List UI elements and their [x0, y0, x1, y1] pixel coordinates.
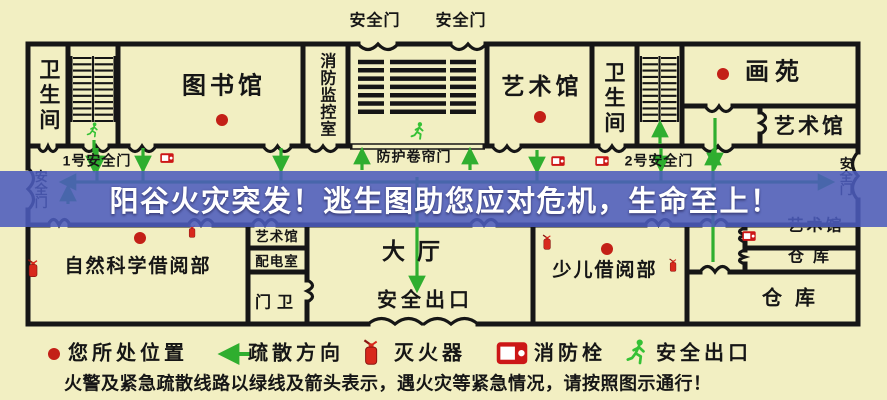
- fire-hydrant-icon: [160, 153, 173, 163]
- location-dot-icon: [717, 68, 729, 80]
- room-label-warehouse-small: 仓库: [788, 250, 838, 267]
- room-label-restroom-left: 卫生间: [37, 59, 59, 134]
- room-label-children-reading: 少儿借阅部: [552, 261, 657, 281]
- room-label-warehouse-large: 仓库: [762, 289, 828, 310]
- room-label-main-hall: 大厅: [382, 240, 452, 264]
- door-label-exit-no2: 2号安全门: [625, 154, 694, 169]
- running-person-icon: [628, 339, 644, 363]
- room-label-power-room: 配电室: [255, 255, 299, 269]
- room-label-top-exit-door-2: 安全门: [435, 14, 486, 31]
- fire-extinguisher-icon: [543, 235, 550, 249]
- room-label-library: 图书馆: [182, 75, 266, 100]
- location-dot-icon: [534, 111, 546, 123]
- legend-label-your-location: 您所处位置: [68, 344, 188, 365]
- news-banner-text: 阳谷火灾突发！逃生图助您应对危机，生命至上！: [109, 178, 780, 220]
- legend-note: 火警及紧急疏散线路以绿线及箭头表示，遇火灾等紧急情况，请按照图示通行！: [64, 375, 712, 394]
- fire-extinguisher-icon: [670, 259, 676, 271]
- room-label-art-gallery-top: 艺术馆: [502, 75, 583, 99]
- evacuation-map: 安全门 安全门 卫生间 图书馆 消防监控室 艺术馆 卫生间 画苑 艺术馆 1号安…: [0, 0, 887, 400]
- room-label-restroom-right: 卫生间: [602, 62, 624, 137]
- running-person-icon: [412, 122, 423, 139]
- door-label-exit-no1: 1号安全门: [63, 154, 132, 169]
- fire-hydrant-icon: [497, 342, 528, 364]
- legend-label-fire-extinguisher: 灭火器: [394, 344, 466, 365]
- room-label-painting-garden: 画苑: [745, 61, 805, 86]
- legend-label-evacuation-direction: 疏散方向: [248, 344, 344, 365]
- label-hall-safety-exit: 安全出口: [377, 291, 473, 312]
- room-label-art-gallery-top-right: 艺术馆: [774, 116, 846, 138]
- room-label-natural-science: 自然科学借阅部: [64, 257, 211, 277]
- door-label-fire-shutter: 防护卷帘门: [377, 150, 452, 165]
- fire-hydrant-icon: [595, 156, 608, 166]
- location-dot-icon: [216, 114, 228, 126]
- room-label-fire-control-room: 消防监控室: [317, 53, 334, 138]
- room-label-guard-room: 门卫: [255, 296, 299, 313]
- fire-extinguisher-icon: [364, 340, 376, 364]
- location-dot-icon: [48, 348, 60, 360]
- room-label-art-gallery-mid: 艺术馆: [255, 230, 299, 244]
- fire-hydrant-icon: [551, 156, 564, 166]
- location-dot-icon: [134, 232, 146, 244]
- legend-label-fire-hydrant: 消防栓: [534, 344, 606, 365]
- location-dot-icon: [601, 243, 613, 255]
- bookshelves: [358, 62, 476, 112]
- room-label-top-exit-door-1: 安全门: [349, 14, 400, 31]
- running-person-icon: [88, 123, 97, 137]
- fire-hydrant-icon: [742, 231, 755, 241]
- legend-label-safety-exit: 安全出口: [656, 344, 752, 365]
